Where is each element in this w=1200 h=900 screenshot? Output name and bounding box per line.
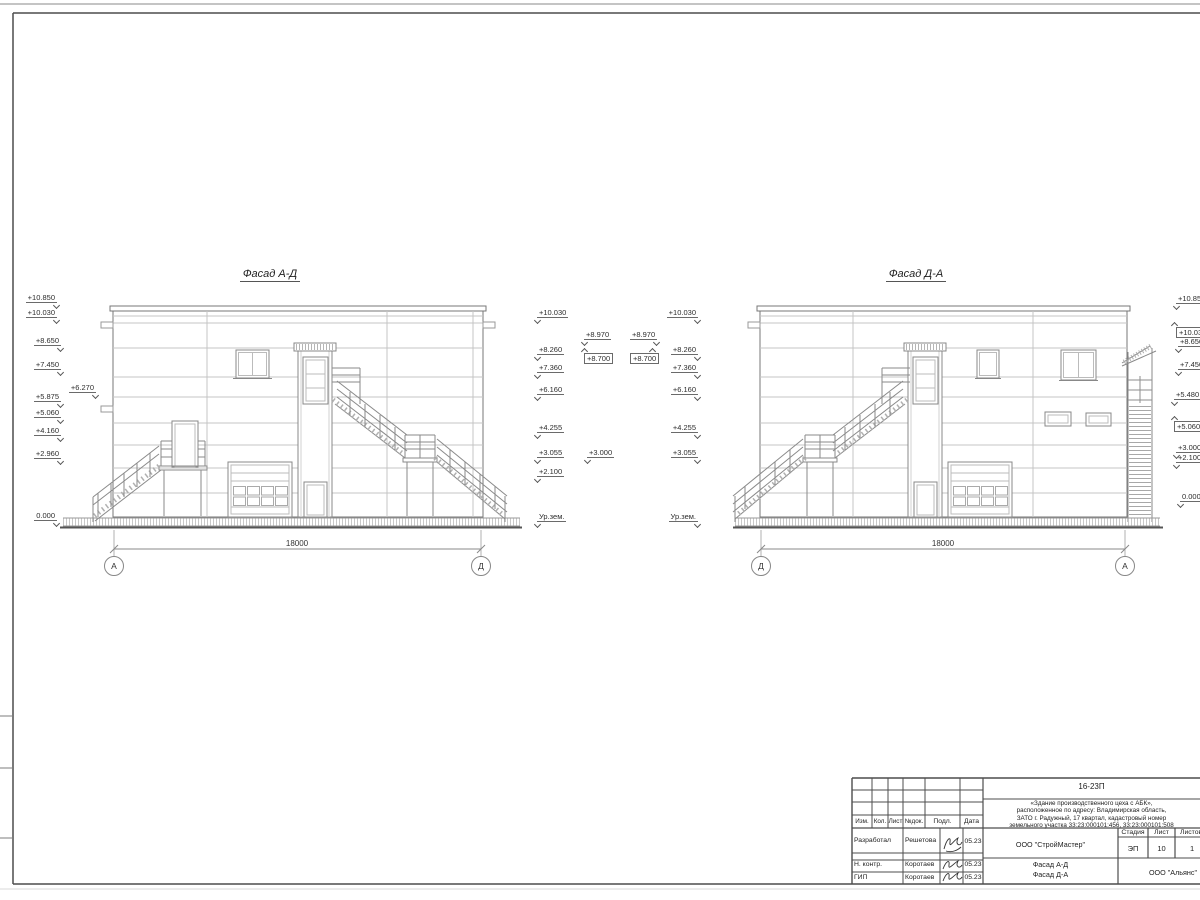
elevation-mark: +4.160 xyxy=(34,426,61,436)
sheets-value: 1 xyxy=(1190,844,1194,853)
project-description: «Здание производственного цеха с АБК», р… xyxy=(984,800,1199,829)
row-name: Коротаев xyxy=(905,861,934,868)
elevation-mark: +7.450 xyxy=(34,360,61,370)
elevation-mark: +8.260 xyxy=(671,345,698,355)
facade-da-title: Фасад Д-А xyxy=(856,268,976,280)
elevation-mark: +6.270 xyxy=(69,383,96,393)
designer-name: ООО "Альянс" xyxy=(1118,868,1200,877)
sheet-header: Лист xyxy=(1148,829,1175,836)
elevation-mark: +3.000 xyxy=(587,448,614,458)
dimension-label: 18000 xyxy=(913,539,973,548)
description-line: ЗАТО г. Радужный, 17 квартал, кадастровы… xyxy=(984,815,1199,822)
subject-line: Фасад А-Д xyxy=(983,860,1118,870)
facade-ad-dimension xyxy=(105,530,491,576)
elevation-mark: +5.060 xyxy=(1174,421,1200,432)
elevation-mark: +4.255 xyxy=(537,423,564,433)
elevation-mark: +5.060 xyxy=(34,408,61,418)
elevation-mark: +8.970 xyxy=(584,330,611,340)
stage-header: Стадия xyxy=(1118,829,1148,836)
elevation-mark: +10.030 xyxy=(537,308,568,318)
subject-line: Фасад Д-А xyxy=(983,870,1118,880)
row-date: 05.23 xyxy=(964,861,982,868)
elevation-mark: Ур.зем. xyxy=(537,512,566,522)
stage-value: ЭП xyxy=(1118,844,1148,853)
column-header-kol: Кол. xyxy=(872,818,888,825)
elevation-mark: Ур.зем. xyxy=(669,512,698,522)
elevation-mark: +7.450 xyxy=(1178,360,1200,370)
project-code: 16-23П xyxy=(983,782,1200,791)
elevation-mark: +2.100 xyxy=(1176,453,1200,463)
row-date: 05.23 xyxy=(964,838,982,845)
elevation-mark: +8.970 xyxy=(630,330,657,340)
elevation-mark: +5.480 xyxy=(1174,390,1200,400)
column-header-ndok: №док. xyxy=(903,818,925,825)
axis-bubble-label: А xyxy=(104,561,124,572)
elevation-mark: +3.000 xyxy=(1176,443,1200,453)
description-line: расположенное по адресу: Владимирская об… xyxy=(984,807,1199,814)
elevation-mark: +8.700 xyxy=(630,353,659,364)
facade-da-dimension xyxy=(752,530,1135,576)
dimension-label: 18000 xyxy=(267,539,327,548)
elevation-mark: +3.055 xyxy=(537,448,564,458)
elevation-mark: 0.000 xyxy=(1180,492,1200,502)
sheets-header: Листов xyxy=(1180,829,1200,836)
elevation-mark: +10.850 xyxy=(26,293,57,303)
drawing-sheet: Фасад А-Д Фасад Д-А 18000 18000 А Д Д А … xyxy=(0,0,1200,900)
sheet-value: 10 xyxy=(1148,844,1175,853)
elevation-mark: +2.100 xyxy=(537,467,564,477)
axis-bubble-label: Д xyxy=(471,561,491,572)
row-name: Коротаев xyxy=(905,874,934,881)
row-role: Разработал xyxy=(854,837,891,844)
elevation-mark: +10.850 xyxy=(1176,294,1200,304)
column-header-data: Дата xyxy=(960,818,983,825)
column-header-podl: Подл. xyxy=(925,818,960,825)
elevation-mark: +4.255 xyxy=(671,423,698,433)
facade-ad-title: Фасад А-Д xyxy=(210,268,330,280)
elevation-mark: +8.700 xyxy=(584,353,613,364)
elevation-mark: +6.160 xyxy=(537,385,564,395)
elevation-mark: +7.360 xyxy=(537,363,564,373)
row-name: Решетова xyxy=(905,837,936,844)
elevation-mark: +3.055 xyxy=(671,448,698,458)
facade-da-linework xyxy=(733,306,1163,528)
column-header-izm: Изм. xyxy=(852,818,872,825)
elevation-mark: +8.650 xyxy=(1178,337,1200,347)
elevation-mark: +10.030 xyxy=(26,308,57,318)
elevation-mark: +2.960 xyxy=(34,449,61,459)
contractor-name: ООО "СтройМастер" xyxy=(983,840,1118,849)
axis-bubble-label: Д xyxy=(751,561,771,572)
elevation-mark: +5.875 xyxy=(34,392,61,402)
axis-bubble-label: А xyxy=(1115,561,1135,572)
row-date: 05.23 xyxy=(964,874,982,881)
elevation-mark: +7.360 xyxy=(671,363,698,373)
elevation-mark: +10.030 xyxy=(667,308,698,318)
elevation-mark: +6.160 xyxy=(671,385,698,395)
row-role: Н. контр. xyxy=(854,861,882,868)
elevation-mark: +8.650 xyxy=(34,336,61,346)
row-role: ГИП xyxy=(854,874,867,881)
column-header-list: Лист xyxy=(888,818,903,825)
elevation-mark: 0.000 xyxy=(34,511,57,521)
elevation-mark: +8.260 xyxy=(537,345,564,355)
sheet-subject: Фасад А-Д Фасад Д-А xyxy=(983,860,1118,880)
